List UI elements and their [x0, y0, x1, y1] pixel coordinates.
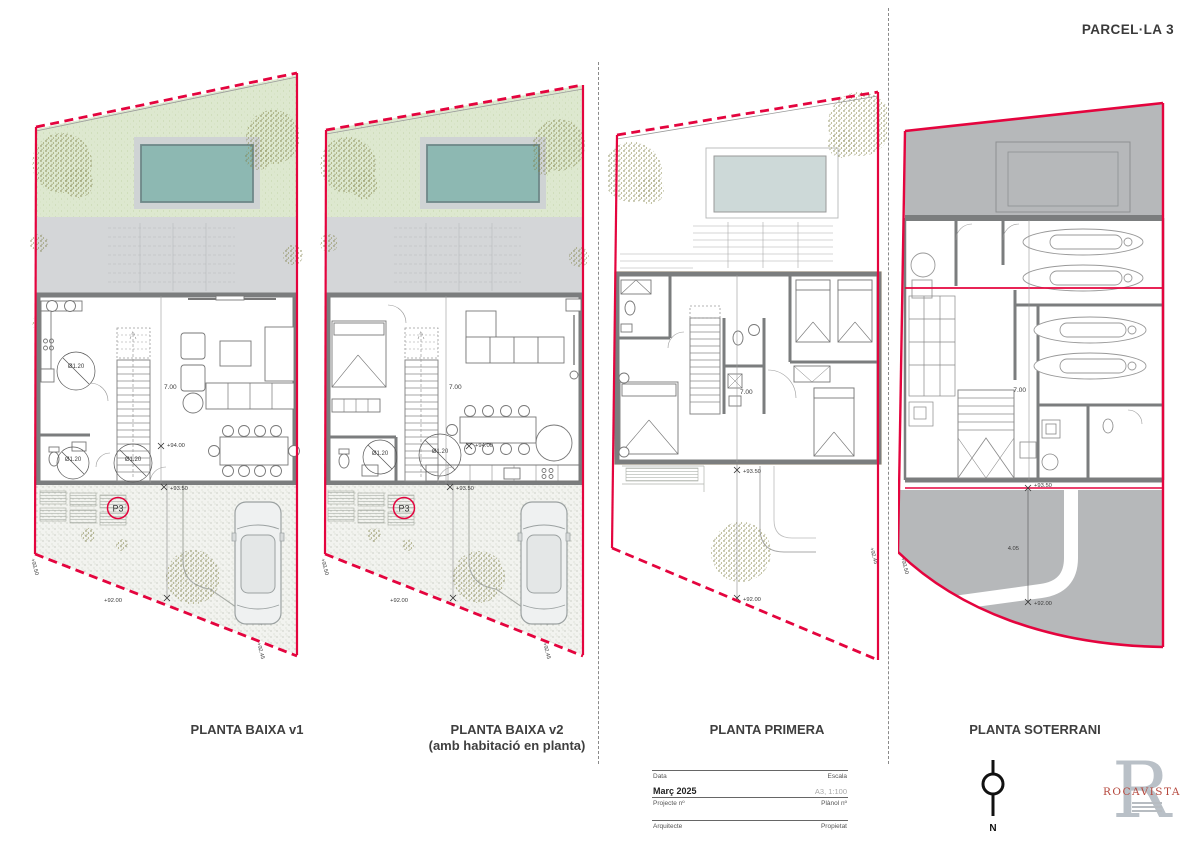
north-arrow: N [974, 758, 1012, 838]
front-yard: P3 +93.50 +92.00 +92.45 +93.50 [30, 484, 297, 660]
house-ground-v1: Ø1.20 Ø1.20 Ø1.20 7.00 +94.00 [38, 295, 300, 483]
level-marker: +94.00 [167, 443, 185, 449]
scale-value: A3, 1:100 [815, 787, 847, 796]
rocavista-logo: R ROCAVISTA [1098, 754, 1186, 842]
owner-label: Propietat [821, 823, 847, 830]
north-label: N [974, 823, 1012, 834]
sheet-title: PARCEL·LA 3 [1082, 22, 1174, 37]
earth-bottom: +93.50 4.05 +92.00 +93.50 [898, 483, 1163, 647]
level-marker: +92.00 [1034, 601, 1052, 607]
lower-yard: +93.50 +92.00 +92.45 [622, 464, 878, 603]
plan-label-baixa-v1: PLANTA BAIXA v1 [122, 722, 372, 738]
plan-separator [598, 62, 599, 764]
plan-label-primera: PLANTA PRIMERA [642, 722, 892, 738]
plan-label-baixa-v2: PLANTA BAIXA v2 (amb habitació en planta… [382, 722, 632, 754]
level-marker: +93.50 [743, 469, 761, 475]
plan-title: PLANTA BAIXA v2 [382, 722, 632, 738]
pool [141, 145, 253, 202]
level-marker: +93.50 [30, 558, 39, 576]
date-value: Març 2025 [653, 786, 697, 796]
level-marker: +93.50 [319, 558, 329, 576]
scale-label: Escala [827, 773, 847, 780]
dim-depth: 7.00 [1013, 387, 1026, 394]
level-marker: +94.00 [475, 443, 493, 449]
level-marker: +93.50 [456, 486, 474, 492]
dim-ramp: 4.05 [1008, 546, 1019, 552]
parking-label: P3 [112, 504, 123, 514]
level-marker: +93.50 [1034, 483, 1052, 489]
stairs [958, 390, 1014, 478]
plan-soterrani-drawing: 7.00 +93.50 4.05 +92.00 +93.50 [898, 90, 1176, 670]
stairs [690, 306, 720, 414]
plan-subtitle: (amb habitació en planta) [382, 738, 632, 754]
level-marker: +92.45 [541, 642, 551, 660]
level-marker: +92.00 [104, 598, 122, 604]
dim-depth: 7.00 [164, 384, 177, 391]
plan-label-soterrani: PLANTA SOTERRANI [910, 722, 1160, 738]
date-label: Data [653, 773, 667, 780]
level-marker: +92.45 [255, 642, 265, 660]
roof-garden [608, 92, 888, 268]
plan-baixa-v1-drawing: Ø1.20 Ø1.20 Ø1.20 7.00 +94.00 P3 [30, 65, 305, 665]
front-yard: P3 +93.50 +92.00 +92.45 +93.50 [319, 484, 583, 660]
plan-baixa-v2-drawing: Ø1.20 Ø1.20 7.00 +94.00 P3 [318, 65, 590, 665]
house-first-floor: 7.00 [615, 272, 881, 464]
dim-diameter: Ø1.20 [68, 364, 85, 370]
level-marker: +93.50 [170, 486, 188, 492]
garden [320, 85, 589, 293]
north-arrow-icon [974, 758, 1012, 820]
earth-top [905, 103, 1163, 215]
dim-diameter: Ø1.20 [125, 457, 142, 463]
pool [427, 145, 539, 202]
level-marker: +92.45 [868, 547, 878, 565]
plan-title: PLANTA BAIXA v1 [122, 722, 372, 738]
logo-tagline-lines [1132, 802, 1162, 814]
dim-diameter: Ø1.20 [65, 457, 82, 463]
car [518, 502, 570, 624]
basement: 7.00 [905, 218, 1163, 480]
plan-title: PLANTA PRIMERA [642, 722, 892, 738]
terrace [36, 217, 297, 293]
project-number-label: Projecte nº [653, 800, 685, 807]
architect-label: Arquitecte [653, 823, 682, 830]
plan-title: PLANTA SOTERRANI [910, 722, 1160, 738]
car [232, 502, 284, 624]
dim-depth: 7.00 [740, 389, 753, 396]
level-marker: +92.00 [390, 598, 408, 604]
parking-label: P3 [398, 504, 409, 514]
bush [166, 550, 220, 604]
bush [711, 522, 771, 582]
level-marker: +92.00 [743, 597, 761, 603]
bedroom-1 [619, 373, 678, 457]
plan-separator [888, 8, 889, 764]
garden [30, 75, 303, 330]
pool-below [714, 156, 826, 212]
dim-depth: 7.00 [449, 384, 462, 391]
tank [911, 253, 935, 277]
dim-diameter: Ø1.20 [372, 451, 389, 457]
drawing-sheet: PARCEL·LA 3 [0, 0, 1200, 848]
house-ground-v2: Ø1.20 Ø1.20 7.00 +94.00 [328, 295, 581, 483]
title-block: Data Escala Març 2025 A3, 1:100 Projecte… [652, 770, 848, 830]
plan-primera-drawing: 7.00 +93.50 +92.00 +92.45 [608, 80, 888, 670]
plan-number-label: Plànol nº [821, 800, 847, 807]
logo-name: ROCAVISTA [1098, 786, 1186, 798]
bush [453, 551, 505, 603]
